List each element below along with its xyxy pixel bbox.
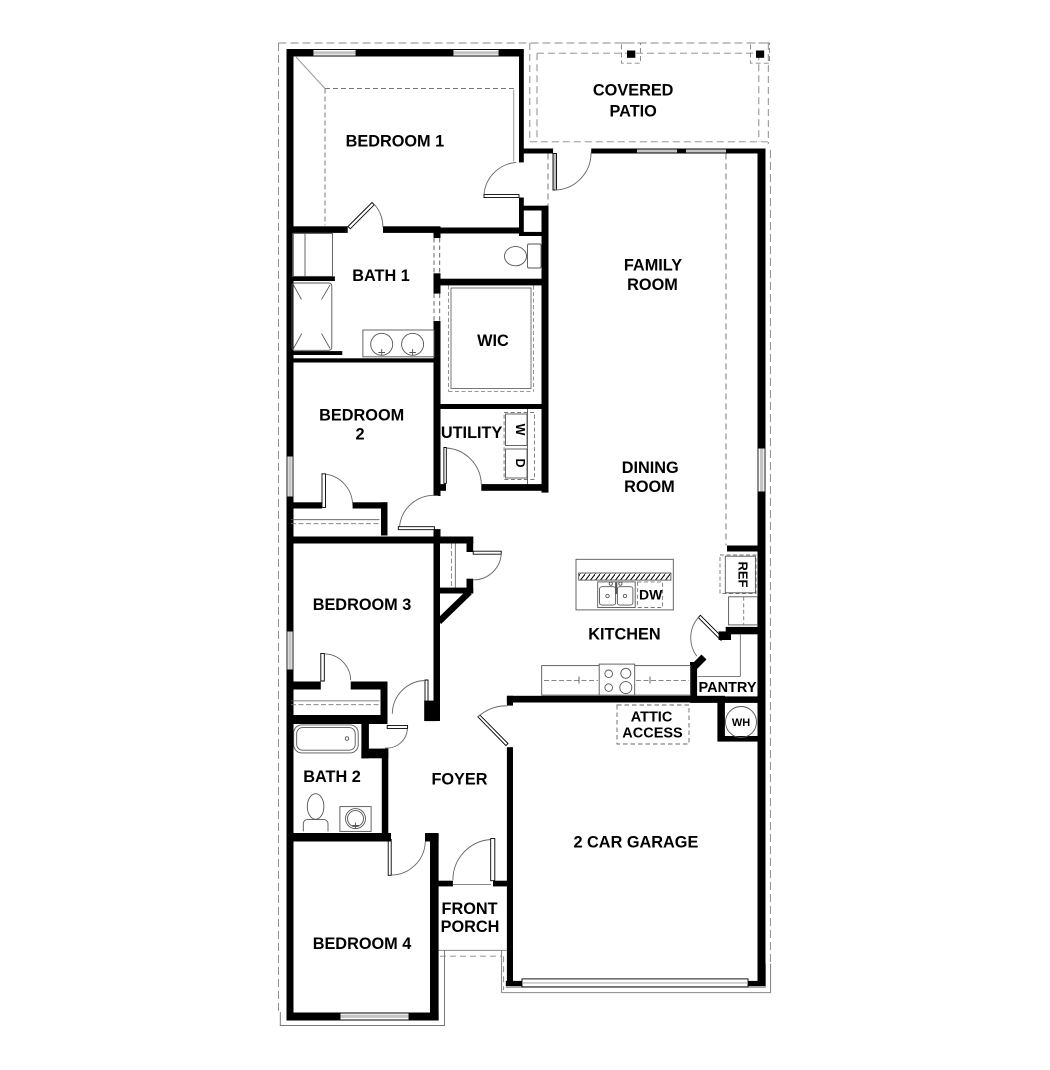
- svg-text:COVERED: COVERED: [593, 81, 674, 99]
- svg-text:DINING: DINING: [622, 459, 679, 477]
- svg-text:UTILITY: UTILITY: [441, 424, 503, 442]
- svg-text:PANTRY: PANTRY: [699, 680, 757, 696]
- svg-text:WH: WH: [732, 717, 750, 729]
- svg-text:FAMILY: FAMILY: [624, 257, 682, 275]
- svg-text:ATTIC: ATTIC: [631, 710, 673, 726]
- svg-text:ACCESS: ACCESS: [622, 726, 683, 742]
- svg-text:BATH 1: BATH 1: [352, 267, 410, 285]
- svg-text:ROOM: ROOM: [627, 276, 678, 294]
- svg-text:2: 2: [355, 425, 364, 443]
- svg-text:BATH 2: BATH 2: [303, 768, 361, 786]
- svg-text:BEDROOM: BEDROOM: [319, 406, 404, 424]
- svg-text:PATIO: PATIO: [610, 102, 657, 120]
- svg-text:BEDROOM 1: BEDROOM 1: [346, 132, 445, 150]
- svg-text:PORCH: PORCH: [441, 918, 500, 936]
- svg-text:REF: REF: [736, 562, 751, 588]
- svg-text:WIC: WIC: [477, 332, 509, 350]
- svg-text:ROOM: ROOM: [624, 478, 675, 496]
- svg-text:FOYER: FOYER: [431, 770, 487, 788]
- svg-text:BEDROOM 3: BEDROOM 3: [313, 596, 412, 614]
- svg-text:W: W: [513, 424, 527, 436]
- svg-text:DW: DW: [639, 587, 663, 603]
- svg-text:D: D: [513, 458, 527, 467]
- svg-text:FRONT: FRONT: [442, 900, 498, 918]
- svg-text:2 CAR GARAGE: 2 CAR GARAGE: [573, 834, 698, 852]
- svg-text:KITCHEN: KITCHEN: [588, 626, 660, 644]
- svg-text:BEDROOM 4: BEDROOM 4: [313, 935, 412, 953]
